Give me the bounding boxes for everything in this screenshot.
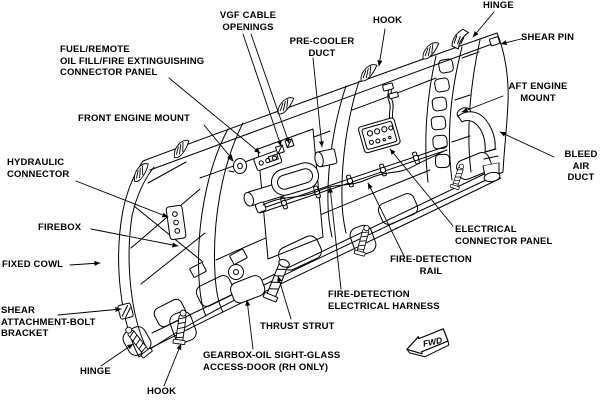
callout-aft-engine-mount: AFT ENGINE MOUNT [508, 81, 567, 104]
callout-fire-detection-harness: FIRE-DETECTION ELECTRICAL HARNESS [328, 289, 440, 312]
leader-fixed-cowl [70, 263, 100, 265]
leader-shear-pin [501, 39, 521, 44]
callout-electrical-connector-panel: ELECTRICAL CONNECTOR PANEL [455, 224, 552, 247]
callout-shear-attachment-bolt-bracket: SHEAR ATTACHMENT-BOLT BRACKET [1, 305, 96, 340]
fwd-direction-marker: FWD [404, 328, 450, 360]
callout-fuel-connector-panel: FUEL/REMOTE OIL FILL/FIRE EXTINGUISHING … [60, 44, 204, 79]
leader-hook-bottom [164, 344, 181, 386]
leader-gearbox [247, 300, 253, 349]
callout-firebox: FIREBOX [38, 222, 81, 234]
callout-thrust-strut: THRUST STRUT [260, 321, 335, 333]
callout-pre-cooler-duct: PRE-COOLER DUCT [290, 36, 355, 59]
callout-fixed-cowl: FIXED COWL [2, 259, 63, 271]
leader-bleed [500, 132, 554, 157]
callout-hydraulic-connector: HYDRAULIC CONNECTOR [7, 157, 69, 180]
leader-hook-top [379, 29, 385, 66]
callout-vgf-cable-openings: VGF CABLE OPENINGS [220, 10, 276, 33]
callout-hinge-top: HINGE [483, 0, 514, 12]
callout-front-engine-mount: FRONT ENGINE MOUNT [78, 113, 190, 125]
shear-bracket-shape [117, 303, 133, 320]
callout-hook-top: HOOK [373, 15, 402, 27]
callout-gearbox-access-door: GEARBOX-OIL SIGHT-GLASS ACCESS-DOOR (RH … [203, 350, 340, 373]
leader-hinge-top [473, 12, 494, 37]
callout-fire-detection-rail: FIRE-DETECTION RAIL [390, 254, 472, 277]
callout-shear-pin: SHEAR PIN [521, 32, 574, 44]
leader-hinge-bottom [101, 344, 133, 366]
callout-bleed-air-duct: BLEED AIR DUCT [565, 149, 598, 184]
callout-hinge-bottom: HINGE [80, 366, 111, 378]
callout-hook-bottom: HOOK [147, 386, 176, 398]
diagram-canvas: FWD VGF CABLE OPENINGS PRE-COOLER DUCT H… [0, 0, 609, 402]
